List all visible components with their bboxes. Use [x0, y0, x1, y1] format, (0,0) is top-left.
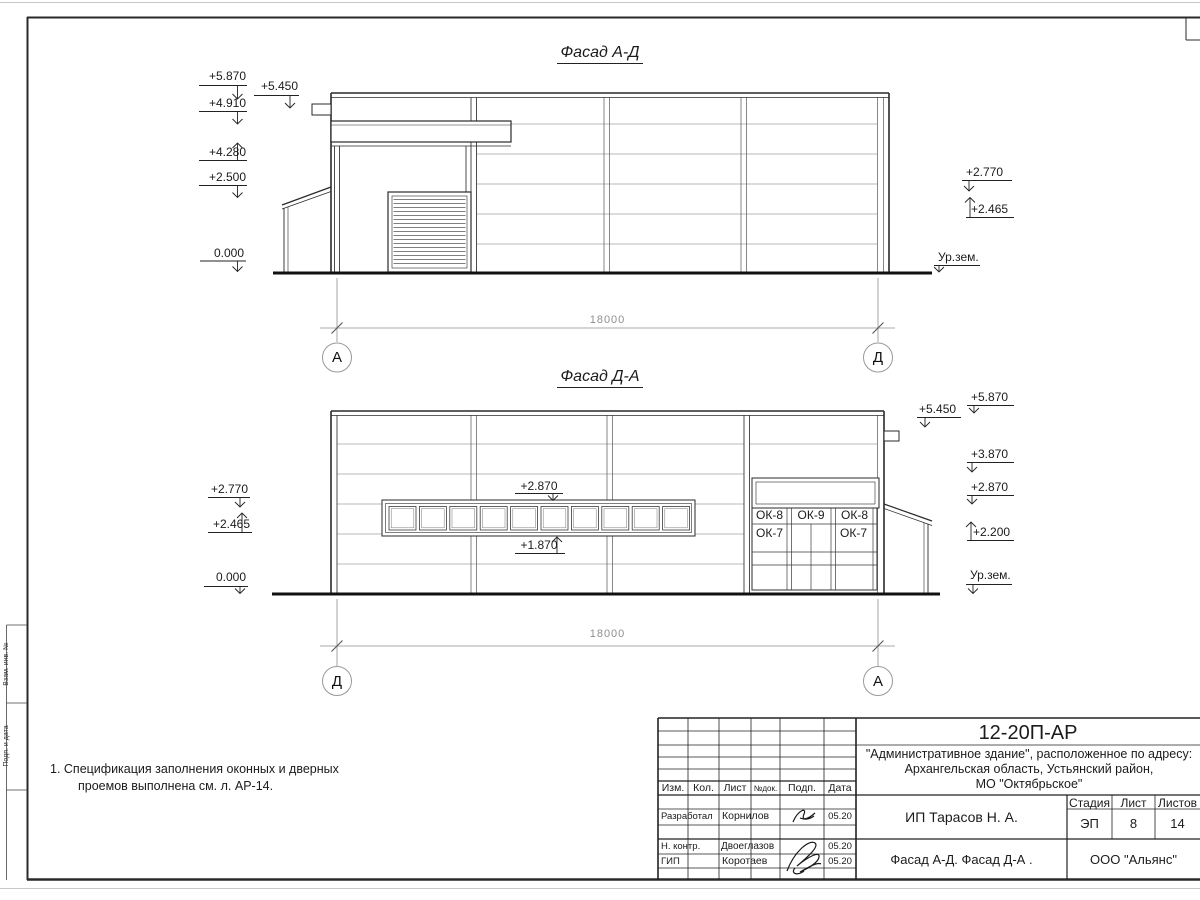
- elevation-label: +5.450: [252, 80, 298, 93]
- window-label: ОК-9: [793, 509, 829, 522]
- elevation-label: 0.000: [200, 571, 246, 584]
- frame-strip-label: [3, 800, 15, 870]
- ground-level-label: Ур.зем.: [970, 569, 1011, 582]
- sheet-value: 8: [1112, 817, 1155, 831]
- date-ncontrol: 05.20: [824, 842, 856, 852]
- note-line-2: проемов выполнена см. л. АР-14.: [78, 780, 273, 794]
- window-label: ОК-8: [752, 509, 787, 522]
- elevation-label: +2.770: [966, 166, 1003, 179]
- axis-letter: А: [323, 350, 351, 367]
- elevation-label: 0.000: [198, 247, 244, 260]
- elevation-label: +2.770: [200, 483, 248, 496]
- frame-strip-label: Подп. и дата: [3, 711, 15, 781]
- axis-bubbles-bottom: [323, 667, 893, 696]
- sheets-value: 14: [1155, 817, 1200, 831]
- sheet-header: Лист: [1112, 797, 1155, 810]
- facade-bottom-linework: [204, 406, 1014, 696]
- stage-value: ЭП: [1067, 817, 1112, 831]
- window-label: ОК-7: [840, 527, 867, 540]
- col-header-izm: Изм.: [658, 783, 688, 795]
- elevation-label: +2.465: [971, 203, 1008, 216]
- elevation-label: +2.465: [202, 518, 250, 531]
- elevation-label: +4.280: [196, 146, 246, 159]
- dimension-value: 18000: [570, 628, 645, 640]
- project-line-1: "Административное здание", расположенное…: [858, 748, 1200, 762]
- col-header-ndok: №док.: [751, 785, 780, 794]
- sheet-title: Фасад А-Д. Фасад Д-А .: [856, 853, 1067, 867]
- facade-bottom-title: Фасад Д-А: [500, 368, 700, 388]
- col-header-list: Лист: [719, 783, 751, 795]
- elevation-label: +5.870: [196, 70, 246, 83]
- elevation-label: +1.870: [515, 539, 563, 552]
- drawing-sheet: Взам. инв. № Подп. и дата Фасад А-Д +5.8…: [0, 0, 1200, 900]
- col-header-data: Дата: [824, 783, 856, 795]
- company-name: ООО "Альянс": [1067, 853, 1200, 867]
- name-developer: Корнилов: [722, 811, 769, 823]
- role-developer: Разработал: [661, 812, 713, 822]
- col-header-kol: Кол.: [688, 783, 719, 795]
- elevation-label: +2.500: [196, 171, 246, 184]
- project-line-2: Архангельская область, Устьянский район,: [858, 763, 1200, 777]
- elevation-label: +2.870: [971, 481, 1008, 494]
- note-line-1: 1. Спецификация заполнения оконных и две…: [50, 763, 339, 777]
- col-header-podp: Подп.: [780, 783, 824, 795]
- elevation-label: +2.870: [515, 480, 563, 493]
- frame-strip-label: Взам. инв. №: [3, 629, 15, 699]
- name-gip: Коротаев: [722, 856, 767, 868]
- elevation-label: +2.200: [973, 526, 1010, 539]
- role-gip: ГИП: [661, 857, 680, 867]
- axis-letter: Д: [323, 674, 351, 691]
- role-ncontrol: Н. контр.: [661, 842, 700, 852]
- window-label: ОК-7: [756, 527, 783, 540]
- window-label: ОК-8: [836, 509, 873, 522]
- project-line-3: МО "Октябрьское": [858, 778, 1200, 792]
- name-ncontrol: Двоеглазов: [721, 841, 774, 852]
- elevation-label: +3.870: [971, 448, 1008, 461]
- date-developer: 05.20: [824, 812, 856, 822]
- client-name: ИП Тарасов Н. А.: [856, 810, 1067, 825]
- axis-letter: Д: [864, 350, 892, 367]
- date-gip: 05.20: [824, 857, 856, 867]
- dimension-top: [320, 278, 895, 342]
- doc-number: 12-20П-АР: [856, 722, 1200, 744]
- elevation-label: +5.450: [919, 403, 956, 416]
- facade-top-title: Фасад А-Д: [500, 44, 700, 64]
- ground-level-label: Ур.зем.: [938, 251, 979, 264]
- stage-header: Стадия: [1067, 797, 1112, 810]
- axis-letter: А: [864, 674, 892, 691]
- facade-top-linework: [199, 86, 1014, 373]
- signatures: [787, 810, 821, 874]
- dimension-value: 18000: [570, 314, 645, 326]
- sheets-header: Листов: [1155, 797, 1200, 810]
- elevation-label: +5.870: [971, 391, 1008, 404]
- elevation-label: +4.910: [196, 97, 246, 110]
